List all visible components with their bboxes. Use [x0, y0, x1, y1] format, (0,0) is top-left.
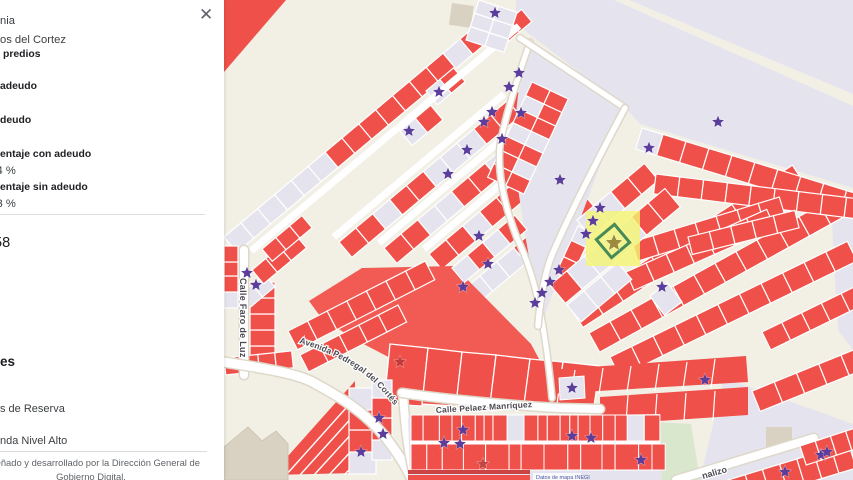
svg-text:Calle Faro de Luz: Calle Faro de Luz — [238, 278, 248, 358]
svg-text:Datos de mapa INEGI: Datos de mapa INEGI — [536, 475, 590, 480]
